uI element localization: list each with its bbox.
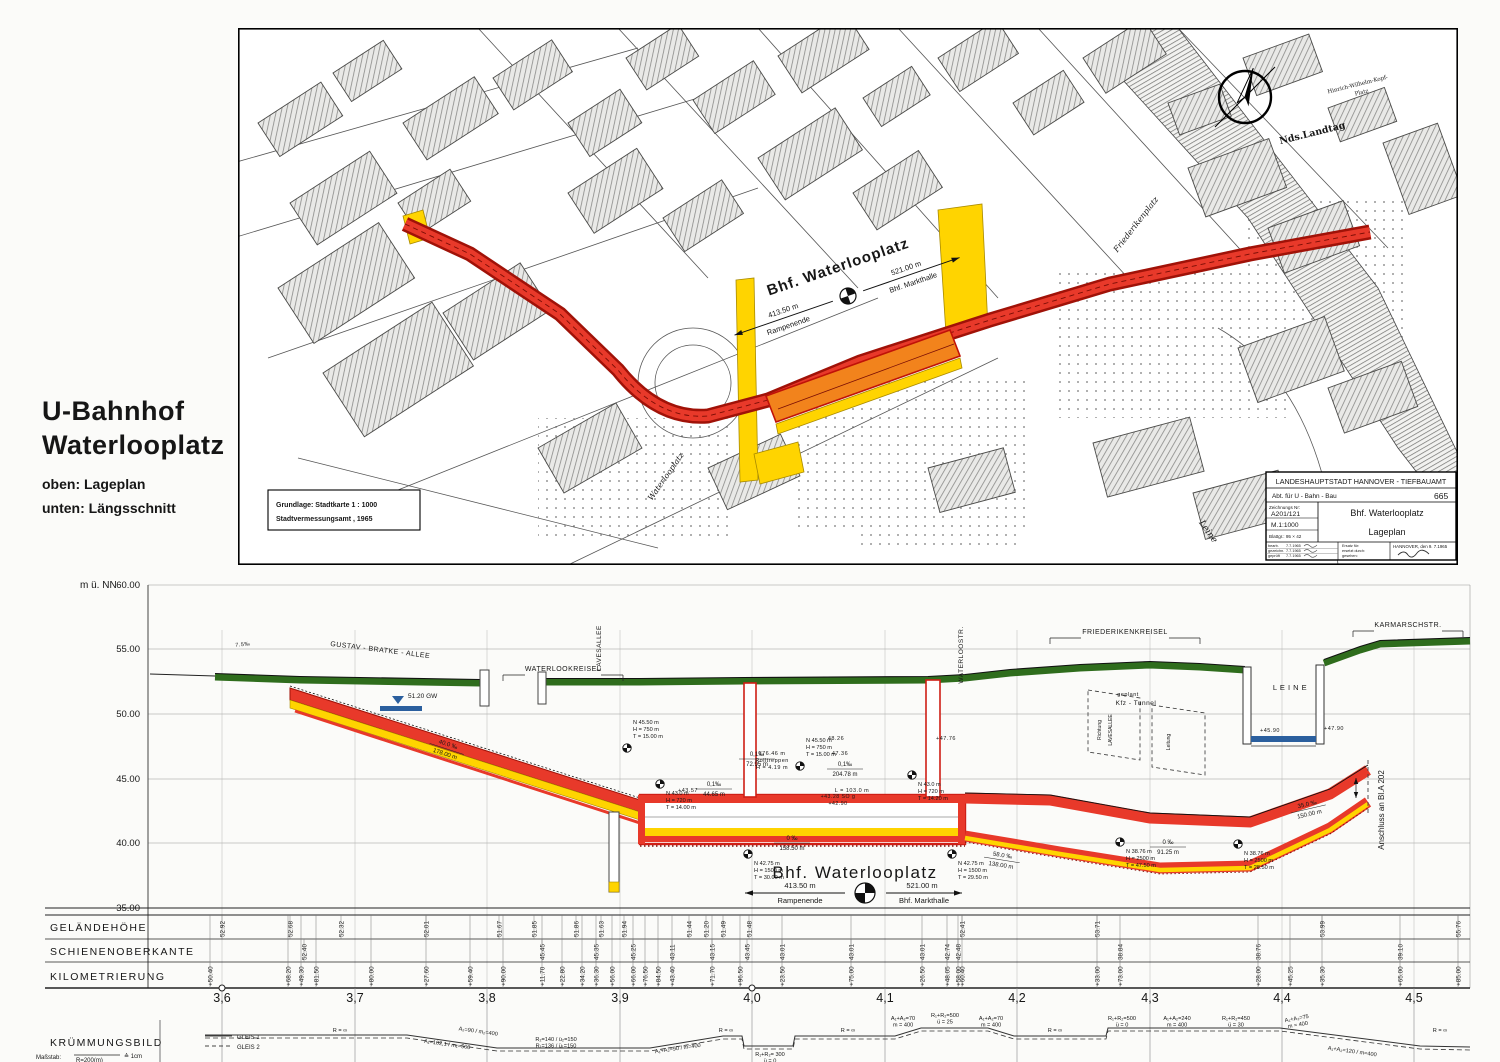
svg-text:geplant: geplant [1117,692,1139,698]
gradient-change-text: T = 29.50 m [958,875,988,881]
note-oben: oben: Lageplan [42,476,145,492]
curve-parameter-label: R₁+R₂= 300ü = 0 [755,1052,785,1062]
gradient-change-text: N 45.50 m [806,738,832,744]
gelaendehoehe-value: 51.49 [721,921,728,937]
elevation-tick-label: 50.00 [116,709,140,720]
kilometrierung-value: +43.40 [670,966,677,986]
curve-parameter-label: A₁+A₂=70m = 400 [891,1016,915,1029]
svg-text:R₂=140 / ü₂=150: R₂=140 / ü₂=150 [535,1037,576,1043]
svg-text:0,1‰: 0,1‰ [750,752,764,758]
kruemmung-gleis2-line [205,1031,1470,1051]
kilometrierung-value: +60.40 [960,966,967,986]
curve-parameter-label: R = ∞ [1433,1028,1447,1034]
gradient-change-text: H = 1500 m [958,868,987,874]
tb-drawing-no-label: Zeichnungs Nr: [1269,505,1300,510]
title-block: LANDESHAUPTSTADT HANNOVER - TIEFBAUAMT A… [1266,472,1456,560]
svg-text:+47.76: +47.76 [936,736,956,742]
tb-drawing-no: A201/121 [1271,511,1300,518]
svg-text:R = ∞: R = ∞ [1048,1028,1062,1034]
svg-text:0 ‰: 0 ‰ [786,836,797,842]
richtung-label: LAVESALLEE [1108,714,1114,746]
schienenoberkante-value: 43.11 [670,944,677,960]
sheet-title: U-Bahnhof Waterlooplatz [42,395,225,463]
profile-km-symbol [855,883,875,903]
street-label: 7.5‰ [235,641,251,649]
schienenoberkante-value: 39.10 [1398,944,1405,960]
schienenoberkante-value: 45.35 [594,944,601,960]
profile-station-name: Bhf. Waterlooplatz [772,863,937,882]
curve-parameter-label: R = ∞ [841,1028,855,1034]
svg-text:WATERLOOKREISEL: WATERLOOKREISEL [525,666,601,673]
gelaendehoehe-value: 53.71 [1095,921,1102,937]
tb-line1: LANDESHAUPTSTADT HANNOVER - TIEFBAUAMT [1276,477,1447,486]
kilometrierung-value: +50.40 [208,966,215,986]
svg-text:R = ∞: R = ∞ [1433,1028,1447,1034]
gradient-change-text: H = 720 m [918,789,944,795]
street-label: WATERLOOSTR. [958,626,965,683]
kilometrierung-value: +36.30 [594,966,601,986]
curve-parameter-label: A₁+A₂=75m = 400 [1284,1014,1310,1031]
svg-text:+42.90: +42.90 [828,801,847,807]
gelaendehoehe-value: 51.94 [622,921,629,937]
street-label: +43.28 SO g [821,794,856,800]
gelaendehoehe-value: 51.48 [747,921,754,937]
gradient-change-text: N 38.76 m [1126,849,1152,855]
street-label: L E I N E [1273,683,1307,692]
kilometrierung-value: +84.50 [656,966,663,986]
kilometrierung-value: +34.20 [580,966,587,986]
svg-text:+45.90: +45.90 [1260,728,1280,734]
street-label: FRIEDERIKENKREISEL [1050,629,1200,644]
tb-replace-label: ersetzt durch: [1342,549,1365,553]
street-label: +47.90 [1324,726,1344,732]
gelaendehoehe-value: 52.41 [960,921,967,937]
curve-parameter-label: A₁+A₂=240m = 400 [1163,1016,1190,1029]
tb-subtitle: Lageplan [1368,527,1405,537]
svg-text:FRIEDERIKENKREISEL: FRIEDERIKENKREISEL [1082,629,1168,636]
slope-label: 58.0 ‰138.00 m [983,850,1021,871]
tunnel-ramp [290,670,640,823]
gradient-change-text: N 45.50 m [633,720,659,726]
schienenoberkante-value: 43.15 [710,944,717,960]
svg-text:R₁+R₂=500: R₁+R₂=500 [931,1013,959,1019]
sheet-title-line1: U-Bahnhof [42,395,225,429]
tb-sig-date: 7.7.1965 [1286,544,1301,548]
tb-sheet: Blattgr.: 95 × 42 [1269,534,1302,539]
curve-parameter-label: R₁+R₂=500ü = 25 [931,1013,959,1026]
svg-text:GUSTAV - BRATKE - ALLEE: GUSTAV - BRATKE - ALLEE [330,641,431,660]
kilometrierung-value: +73.00 [1118,966,1125,986]
kilometrierung-value: +85.00 [1456,966,1463,986]
gradient-change-text: H = 2500 m [1244,858,1273,864]
km-tick-label: 4,2 [1008,991,1025,1005]
curve-parameter-label: R = ∞ [719,1028,733,1034]
kilometrierung-value: +26.50 [920,966,927,986]
curve-parameter-label: A₁+A₂=90 / m=400 [655,1043,702,1055]
svg-text:A₁+A₂=70: A₁+A₂=70 [891,1016,915,1022]
curve-parameter-label: R₂=140 / ü₂=150R₁=136 / ü₁=150 [535,1037,576,1050]
elevation-tick-label: 40.00 [116,838,140,849]
km-tick-label: 3,6 [213,991,230,1005]
profile-station-label: Bhf. Waterlooplatz 413.50 m Rampenende 5… [745,863,962,905]
gradient-change-text: N 43.0 m [666,791,689,797]
svg-text:ü = 25: ü = 25 [937,1020,953,1026]
kilometrierung-value: +90.00 [501,966,508,986]
sheet-title-line2: Waterlooplatz [42,429,225,463]
gradient-change-text: T = 28.50 m [1244,865,1274,871]
gradient-change-text: N 43.0 m [918,782,941,788]
gradient-change-point: N 45.50 mH = 750 mT = 15.00 m [623,720,663,752]
curve-parameter-label: R₁+R₂=450ü = 30 [1222,1016,1250,1029]
gelaendehoehe-value: 51.67 [497,921,504,937]
svg-text:0 ‰: 0 ‰ [1162,840,1173,846]
km-tick-label: 4,4 [1273,991,1290,1005]
street-label: +47.76 [936,736,956,742]
kruemmung-gleis1-line [205,1028,1470,1048]
massstab-denom: R=200(m) [76,1058,103,1062]
kilometrierung-value: +28.00 [1256,966,1263,986]
svg-text:ü = 30: ü = 30 [1228,1023,1244,1029]
row-label-gelaendehoehe: GELÄNDEHÖHE [50,922,147,934]
tb-replace-label: gesehen: [1342,554,1358,558]
svg-text:138.00 m: 138.00 m [988,861,1014,871]
schienenoberkante-value: 45.25 [631,944,638,960]
gelaendehoehe-value: 52.32 [339,921,346,937]
tb-place-date: HANNOVER, den 9. 7.1965 [1393,544,1448,549]
tb-replace-label: Ersatz für: [1342,544,1359,548]
richtung-label: Leitung [1166,734,1172,751]
curve-parameter-label: A₁+A₂=120 / m=400 [1327,1046,1377,1059]
street-label: Kfz - Tunnel [1116,700,1157,707]
lageplan-map: Bhf. Waterlooplatz 413.50 m Rampenende 5… [238,28,1458,565]
svg-text:Kfz - Tunnel: Kfz - Tunnel [1116,700,1157,707]
schienenoberkante-value: 42.48 [956,944,963,960]
tb-line2: Abt. für U - Bahn - Bau [1272,493,1337,500]
svg-text:R₁+R₂= 300: R₁+R₂= 300 [755,1052,785,1058]
km-tick-label: 4,0 [743,991,760,1005]
street-label: GUSTAV - BRATKE - ALLEE [330,641,431,660]
km-tick-label: 3,7 [346,991,363,1005]
kilometrierung-value: +33.00 [1095,966,1102,986]
km-tick-label: 3,9 [611,991,628,1005]
gelaendehoehe-value: 51.44 [687,921,694,937]
tb-sig-role: gezeichn. [1268,549,1284,553]
gelaendehoehe-value: 52.68 [288,921,295,937]
laengsschnitt-profile: m ü. NN 60.0055.0050.0045.0040.0035.00 [0,570,1500,1062]
leine-crossing [1243,665,1324,746]
kruemmungsbild-label: KRÜMMUNGSBILD [50,1037,163,1049]
kruemmung-legend: GLEIS 1 GLEIS 2 [205,1035,260,1051]
schienenoberkante-value: 52.40 [302,944,309,960]
kilometrierung-value: +81.50 [314,966,321,986]
gradient-change-text: H = 720 m [666,798,692,804]
row-label-schienenoberkante: SCHIENENOBERKANTE [50,946,195,958]
svg-text:m = 400: m = 400 [1167,1023,1187,1029]
schienenoberkante-value: 43.01 [849,944,856,960]
gradient-change-text: T = 47.50 m [1126,863,1156,869]
svg-text:ü = 0: ü = 0 [1116,1023,1129,1029]
street-label: LAVESALLEE [596,625,603,671]
gradient-change-text: H = 750 m [806,745,832,751]
svg-text:ü = 0: ü = 0 [764,1059,777,1062]
schienenoberkante-value: 42.74 [945,944,952,960]
anschluss-label: Anschluss an Bl.A 202 [1377,770,1386,850]
svg-text:91.25 m: 91.25 m [1157,850,1179,856]
kilometrierung-value: +96.50 [738,966,745,986]
massstab-eq: ≙ 1cm [124,1053,142,1060]
svg-text:158.50 m: 158.50 m [779,846,804,852]
kilometrierung-value: +80.00 [369,966,376,986]
kilometrierung-value: +66.00 [631,966,638,986]
curve-parameter-label: R = ∞ [1048,1028,1062,1034]
profile-dist-right: 521.00 m [906,881,937,890]
street-label: +45.90 [1260,728,1280,734]
svg-text:A₂=90 / m₂=400: A₂=90 / m₂=400 [458,1026,498,1037]
km-tick-label: 3,8 [478,991,495,1005]
kilometrierung-value: +27.60 [424,966,431,986]
kilometrierung-value: +23.50 [780,966,787,986]
gradient-change-text: H = 750 m [633,727,659,733]
legend-gleis2: GLEIS 2 [237,1045,260,1051]
km-tick-label: 4,3 [1141,991,1158,1005]
svg-text:72.95 m: 72.95 m [746,762,768,768]
kilometrierung-value: +68.20 [286,966,293,986]
svg-text:A₁+A₂=120 / m=400: A₁+A₂=120 / m=400 [1327,1046,1377,1059]
svg-text:0,1‰: 0,1‰ [707,782,721,788]
schienenoberkante-value: 38.84 [1118,944,1125,960]
gelaendehoehe-value: 55.76 [1456,921,1463,937]
schienenoberkante-value: 43.45 [745,944,752,960]
kilometrierung-value: +48.05 [945,966,952,986]
svg-text:m = 400: m = 400 [893,1023,913,1029]
source-note-line1: Grundlage: Stadtkarte 1 : 1000 [276,502,377,509]
gelaendehoehe-value: 51.85 [532,921,539,937]
elevation-tick-label: 55.00 [116,644,140,655]
tb-sig-role: bearb. [1268,544,1279,548]
kilometrierung-value: +49.30 [299,966,306,986]
richtung-label: Richtung [1097,720,1103,740]
svg-text:R₁+R₂=500: R₁+R₂=500 [1108,1016,1136,1022]
gradient-change-text: T = 15.00 m [633,734,663,740]
gradient-change-text: T = 14.20 m [918,796,948,802]
svg-text:0,1‰: 0,1‰ [838,762,852,768]
kruemmung-curve-labels: R = ∞A₁=102,1 / m₁=500A₂=90 / m₂=400R₂=1… [333,1013,1447,1062]
gradient-change-text: T = 14.00 m [666,805,696,811]
svg-text:R = ∞: R = ∞ [333,1028,347,1034]
schienenoberkante-value: 43.01 [780,944,787,960]
kilometrierung-value: +56.00 [610,966,617,986]
map-source-note: Grundlage: Stadtkarte 1 : 1000 Stadtverm… [268,490,420,530]
kilometrierung-value: +71.70 [710,966,717,986]
svg-text:LAVESALLEE: LAVESALLEE [596,625,603,671]
svg-text:WATERLOOSTR.: WATERLOOSTR. [958,626,965,683]
svg-text:m = 400: m = 400 [981,1023,1001,1029]
kilometrierung-value: +22.80 [560,966,567,986]
street-label: geplant [1117,692,1139,698]
massstab-label: Maßstab: [36,1055,61,1061]
source-note-line2: Stadtvermessungsamt , 1965 [276,516,373,523]
svg-text:7.5‰: 7.5‰ [235,641,251,649]
profile-dist-left: 413.50 m [784,881,815,890]
drawing-sheet: { "header": { "title_line1": "U-Bahnhof"… [0,0,1500,1062]
curve-parameter-label: R₁+R₂=500ü = 0 [1108,1016,1136,1029]
gradient-change-text: N 42.75 m [958,861,984,867]
tb-scale: M.1:1000 [1271,522,1299,529]
svg-text:R₁+R₂=450: R₁+R₂=450 [1222,1016,1250,1022]
gelaendehoehe-value: 51.86 [574,921,581,937]
kilometrierung-value: +59.40 [468,966,475,986]
svg-text:L E I N E: L E I N E [1273,683,1307,692]
svg-text:+47.90: +47.90 [1324,726,1344,732]
km-tick-label: 4,1 [876,991,893,1005]
kruemmungsbild: KRÜMMUNGSBILD Maßstab: R=200(m) ≙ 1cm GL… [36,1013,1470,1062]
km-marker-circle [749,985,755,991]
schienenoberkante-value: 43.01 [920,944,927,960]
elevation-tick-labels: 60.0055.0050.0045.0040.0035.00 [116,580,140,914]
svg-text:R₁=136 / ü₁=150: R₁=136 / ü₁=150 [536,1044,577,1050]
gelaendehoehe-value: 52.92 [220,921,227,937]
svg-text:R = ∞: R = ∞ [841,1028,855,1034]
svg-text:A₁+A₂=240: A₁+A₂=240 [1163,1016,1190,1022]
gw-label: 51.20 GW [408,693,438,700]
svg-text:KARMARSCHSTR.: KARMARSCHSTR. [1374,622,1441,629]
gradient-change-text: N 38.76 m [1244,851,1270,857]
curve-parameter-label: A₂=90 / m₂=400 [458,1026,498,1037]
curve-parameter-label: A₁+A₂=70m = 400 [979,1016,1003,1029]
gradient-change-point: N 45.50 mH = 750 mT = 15.00 m [796,738,836,770]
schienenoberkante-value: 45.45 [540,944,547,960]
slope-label: 0,1‰204.78 m [827,762,863,778]
gradient-change-point: N 42.75 mH = 1500 mT = 29.50 m [948,850,988,881]
km-tick-label: 4,5 [1405,991,1422,1005]
tb-dept-no: 665 [1434,491,1448,501]
gelaendehoehe-value: 51.63 [599,921,606,937]
tb-sig-role: geprüft [1268,554,1281,558]
gelaendehoehe-value: 51.20 [704,921,711,937]
tb-sig-date: 7.7.1965 [1286,554,1301,558]
kilometrierung-value: +65.00 [1398,966,1405,986]
elevation-unit-label: m ü. NN [80,580,117,591]
schienenoberkante-value: 38.76 [1256,944,1263,960]
svg-text:+43.28 SO g: +43.28 SO g [821,794,856,800]
svg-text:A₁+A₂=90 / m=400: A₁+A₂=90 / m=400 [655,1043,702,1055]
street-label: +42.90 [828,801,847,807]
value-table: GELÄNDEHÖHE SCHIENENOBERKANTE KILOMETRIE… [45,908,1470,988]
slope-label: 0 ‰91.25 m [1150,840,1186,856]
svg-text:204.78 m: 204.78 m [832,772,857,778]
kilometrierung-value: +11.70 [540,966,547,986]
tb-sig-date: 7.7.1965 [1286,549,1301,553]
kilometrierung-value: +45.25 [1288,966,1295,986]
gradient-change-text: T = 15.00 m [806,752,836,758]
elevation-tick-label: 60.00 [116,580,140,591]
note-unten: unten: Längsschnitt [42,500,176,516]
km-marker-circle [219,985,225,991]
row-label-kilometrierung: KILOMETRIERUNG [50,971,166,983]
value-table-entries: 52.9252.6852.3252.0151.6751.8551.8651.63… [208,915,1463,988]
profile-dest-left: Rampenende [777,896,822,905]
gelaendehoehe-value: 52.01 [424,921,431,937]
kilometrierung-value: +35.30 [1320,966,1327,986]
street-label: KARMARSCHSTR. [1353,622,1463,637]
gradient-change-text: H = 2500 m [1126,856,1155,862]
elevation-tick-label: 45.00 [116,774,140,785]
svg-text:R = ∞: R = ∞ [719,1028,733,1034]
svg-text:A₁+A₂=70: A₁+A₂=70 [979,1016,1003,1022]
tb-title: Bhf. Waterlooplatz [1350,508,1424,518]
kilometrierung-value: +75.00 [849,966,856,986]
curve-parameter-label: R = ∞ [333,1028,347,1034]
svg-text:44.65 m: 44.65 m [703,792,725,798]
profile-dest-right: Bhf. Markthalle [899,896,949,905]
kilometrierung-value: +76.50 [643,966,650,986]
gelaendehoehe-value: 53.99 [1320,921,1327,937]
